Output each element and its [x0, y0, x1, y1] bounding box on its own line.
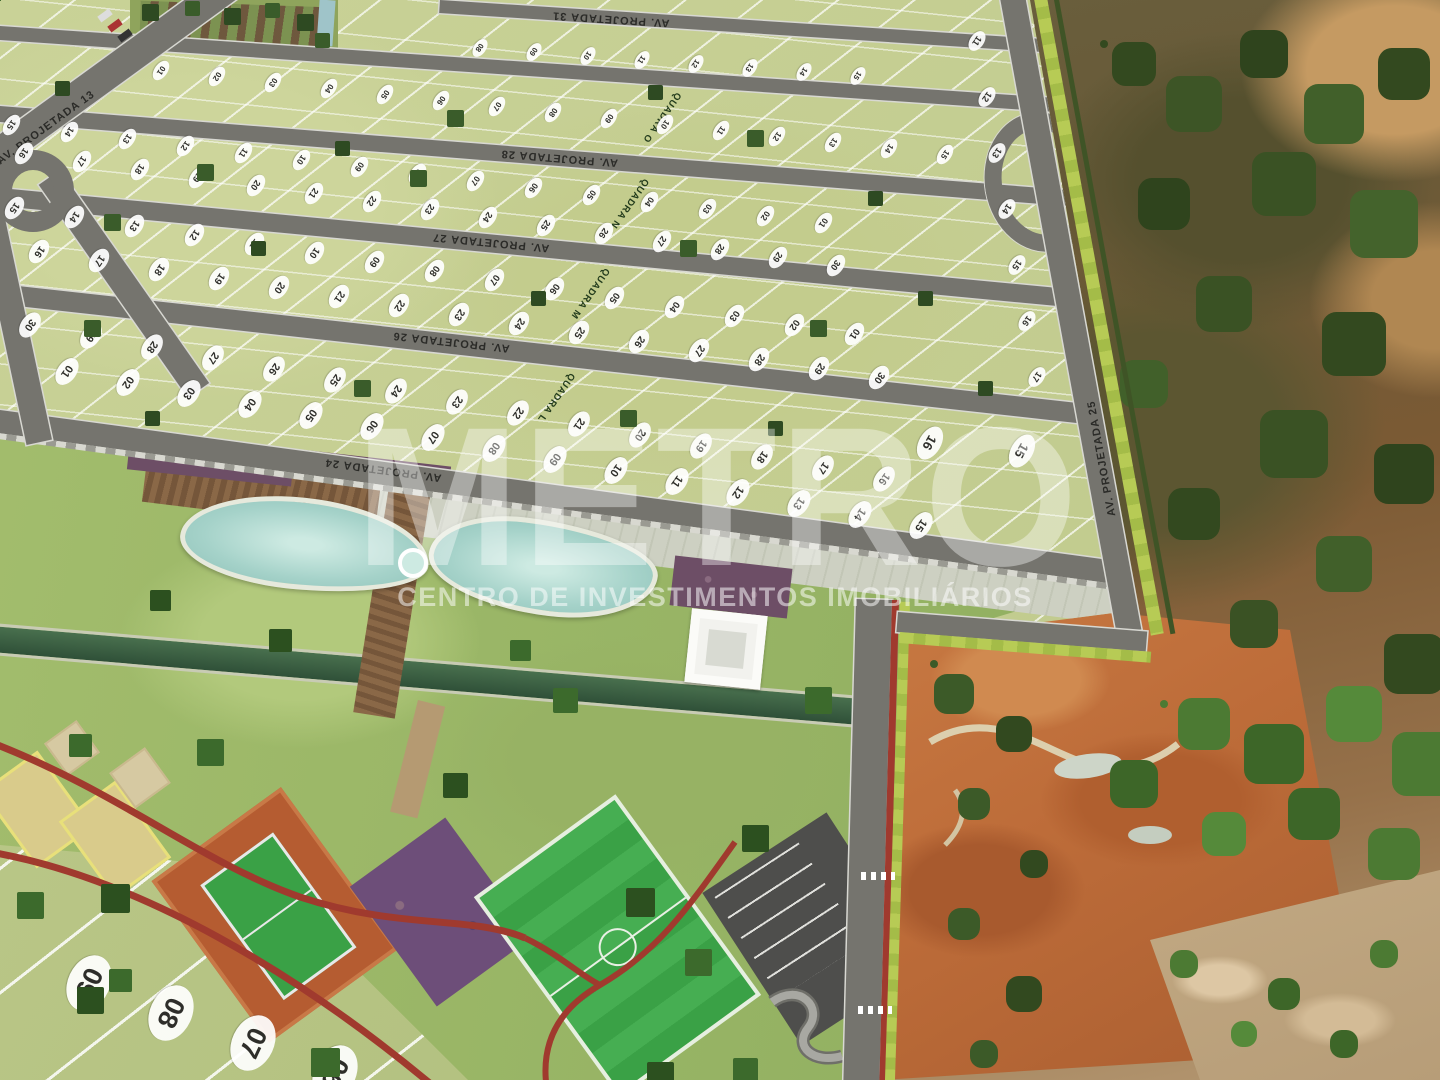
masterplan-render: AV. PROJETADA 31AV. PROJETADA 28AV. PROJ…	[0, 0, 1440, 1080]
boundary-band	[861, 872, 895, 880]
scrub-bushes-lower	[930, 660, 938, 668]
scrub-bushes-green	[1160, 700, 1168, 708]
palm-trees	[0, 0, 1, 1]
scrub-bushes-dark	[1100, 40, 1108, 48]
boundary-band	[858, 1006, 892, 1014]
